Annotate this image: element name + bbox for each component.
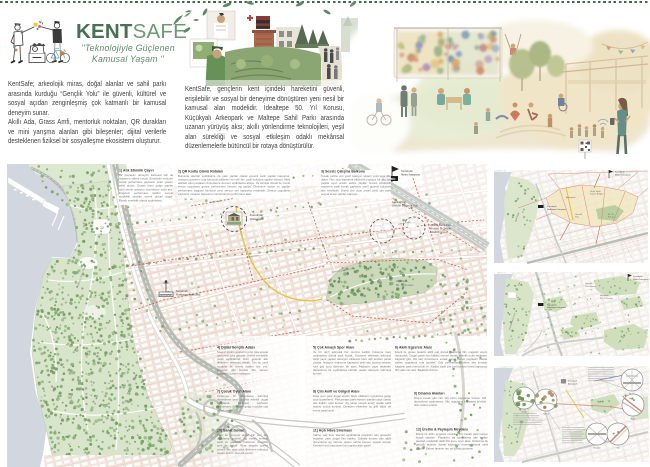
svg-text:Lisesi Parki: Lisesi Parki — [392, 200, 406, 204]
svg-text:MARMARAY: MARMARAY — [160, 294, 173, 297]
svg-text:Genclik Baslama Yolu: Genclik Baslama Yolu — [392, 204, 418, 208]
svg-text:50. Yil Korusu: 50. Yil Korusu — [396, 283, 414, 287]
svg-text:Genclik: Genclik — [585, 283, 593, 285]
svg-text:Mesleki ve Teknik: Mesleki ve Teknik — [430, 227, 452, 231]
svg-text:Arkeopark: Arkeopark — [568, 382, 578, 385]
svg-text:Kucukyali: Kucukyali — [547, 206, 557, 208]
svg-text:Tarihi Toplu: Tarihi Toplu — [590, 190, 601, 193]
svg-text:Metro Istasyonu: Metro Istasyonu — [401, 173, 421, 177]
svg-text:Vedide Baha Pars: Vedide Baha Pars — [430, 223, 452, 227]
svg-text:Metro Istasyonu: Metro Istasyonu — [615, 173, 631, 176]
svg-text:Korusu: Korusu — [608, 216, 615, 219]
svg-text:Idealtepe Istasyonu: Idealtepe Istasyonu — [547, 306, 567, 309]
svg-text:Arkeopark: Arkeopark — [566, 196, 576, 199]
svg-text:Idealtepe Istasyonu: Idealtepe Istasyonu — [547, 208, 567, 211]
svg-text:Metro Istasyonu: Metro Istasyonu — [633, 278, 649, 281]
svg-text:Kesisim: Kesisim — [593, 448, 601, 450]
svg-text:Kucukyali: Kucukyali — [547, 304, 557, 306]
svg-text:Yasam Bolgesi: Yasam Bolgesi — [590, 194, 604, 196]
svg-text:Kucukyali: Kucukyali — [401, 169, 413, 173]
svg-text:Anadolu Lisesi: Anadolu Lisesi — [430, 230, 448, 234]
svg-text:12: 12 — [100, 226, 104, 230]
svg-text:Kucukyali: Kucukyali — [568, 381, 577, 383]
svg-text:Marmaray Istasyonu: Marmaray Istasyonu — [176, 293, 201, 297]
svg-text:Sonra: Sonra — [543, 413, 549, 416]
svg-text:17: 17 — [110, 379, 114, 383]
svg-text:Idealtepe: Idealtepe — [600, 294, 609, 297]
svg-text:Yesil Rotasi: Yesil Rotasi — [585, 285, 596, 288]
svg-text:Kucukyali: Kucukyali — [633, 276, 643, 278]
svg-text:50. Yil Korusu: 50. Yil Korusu — [600, 297, 614, 300]
svg-text:Kucukyali: Kucukyali — [176, 289, 188, 293]
svg-text:Kucukyali: Kucukyali — [615, 172, 625, 174]
svg-text:Arkeopark: Arkeopark — [250, 217, 264, 221]
